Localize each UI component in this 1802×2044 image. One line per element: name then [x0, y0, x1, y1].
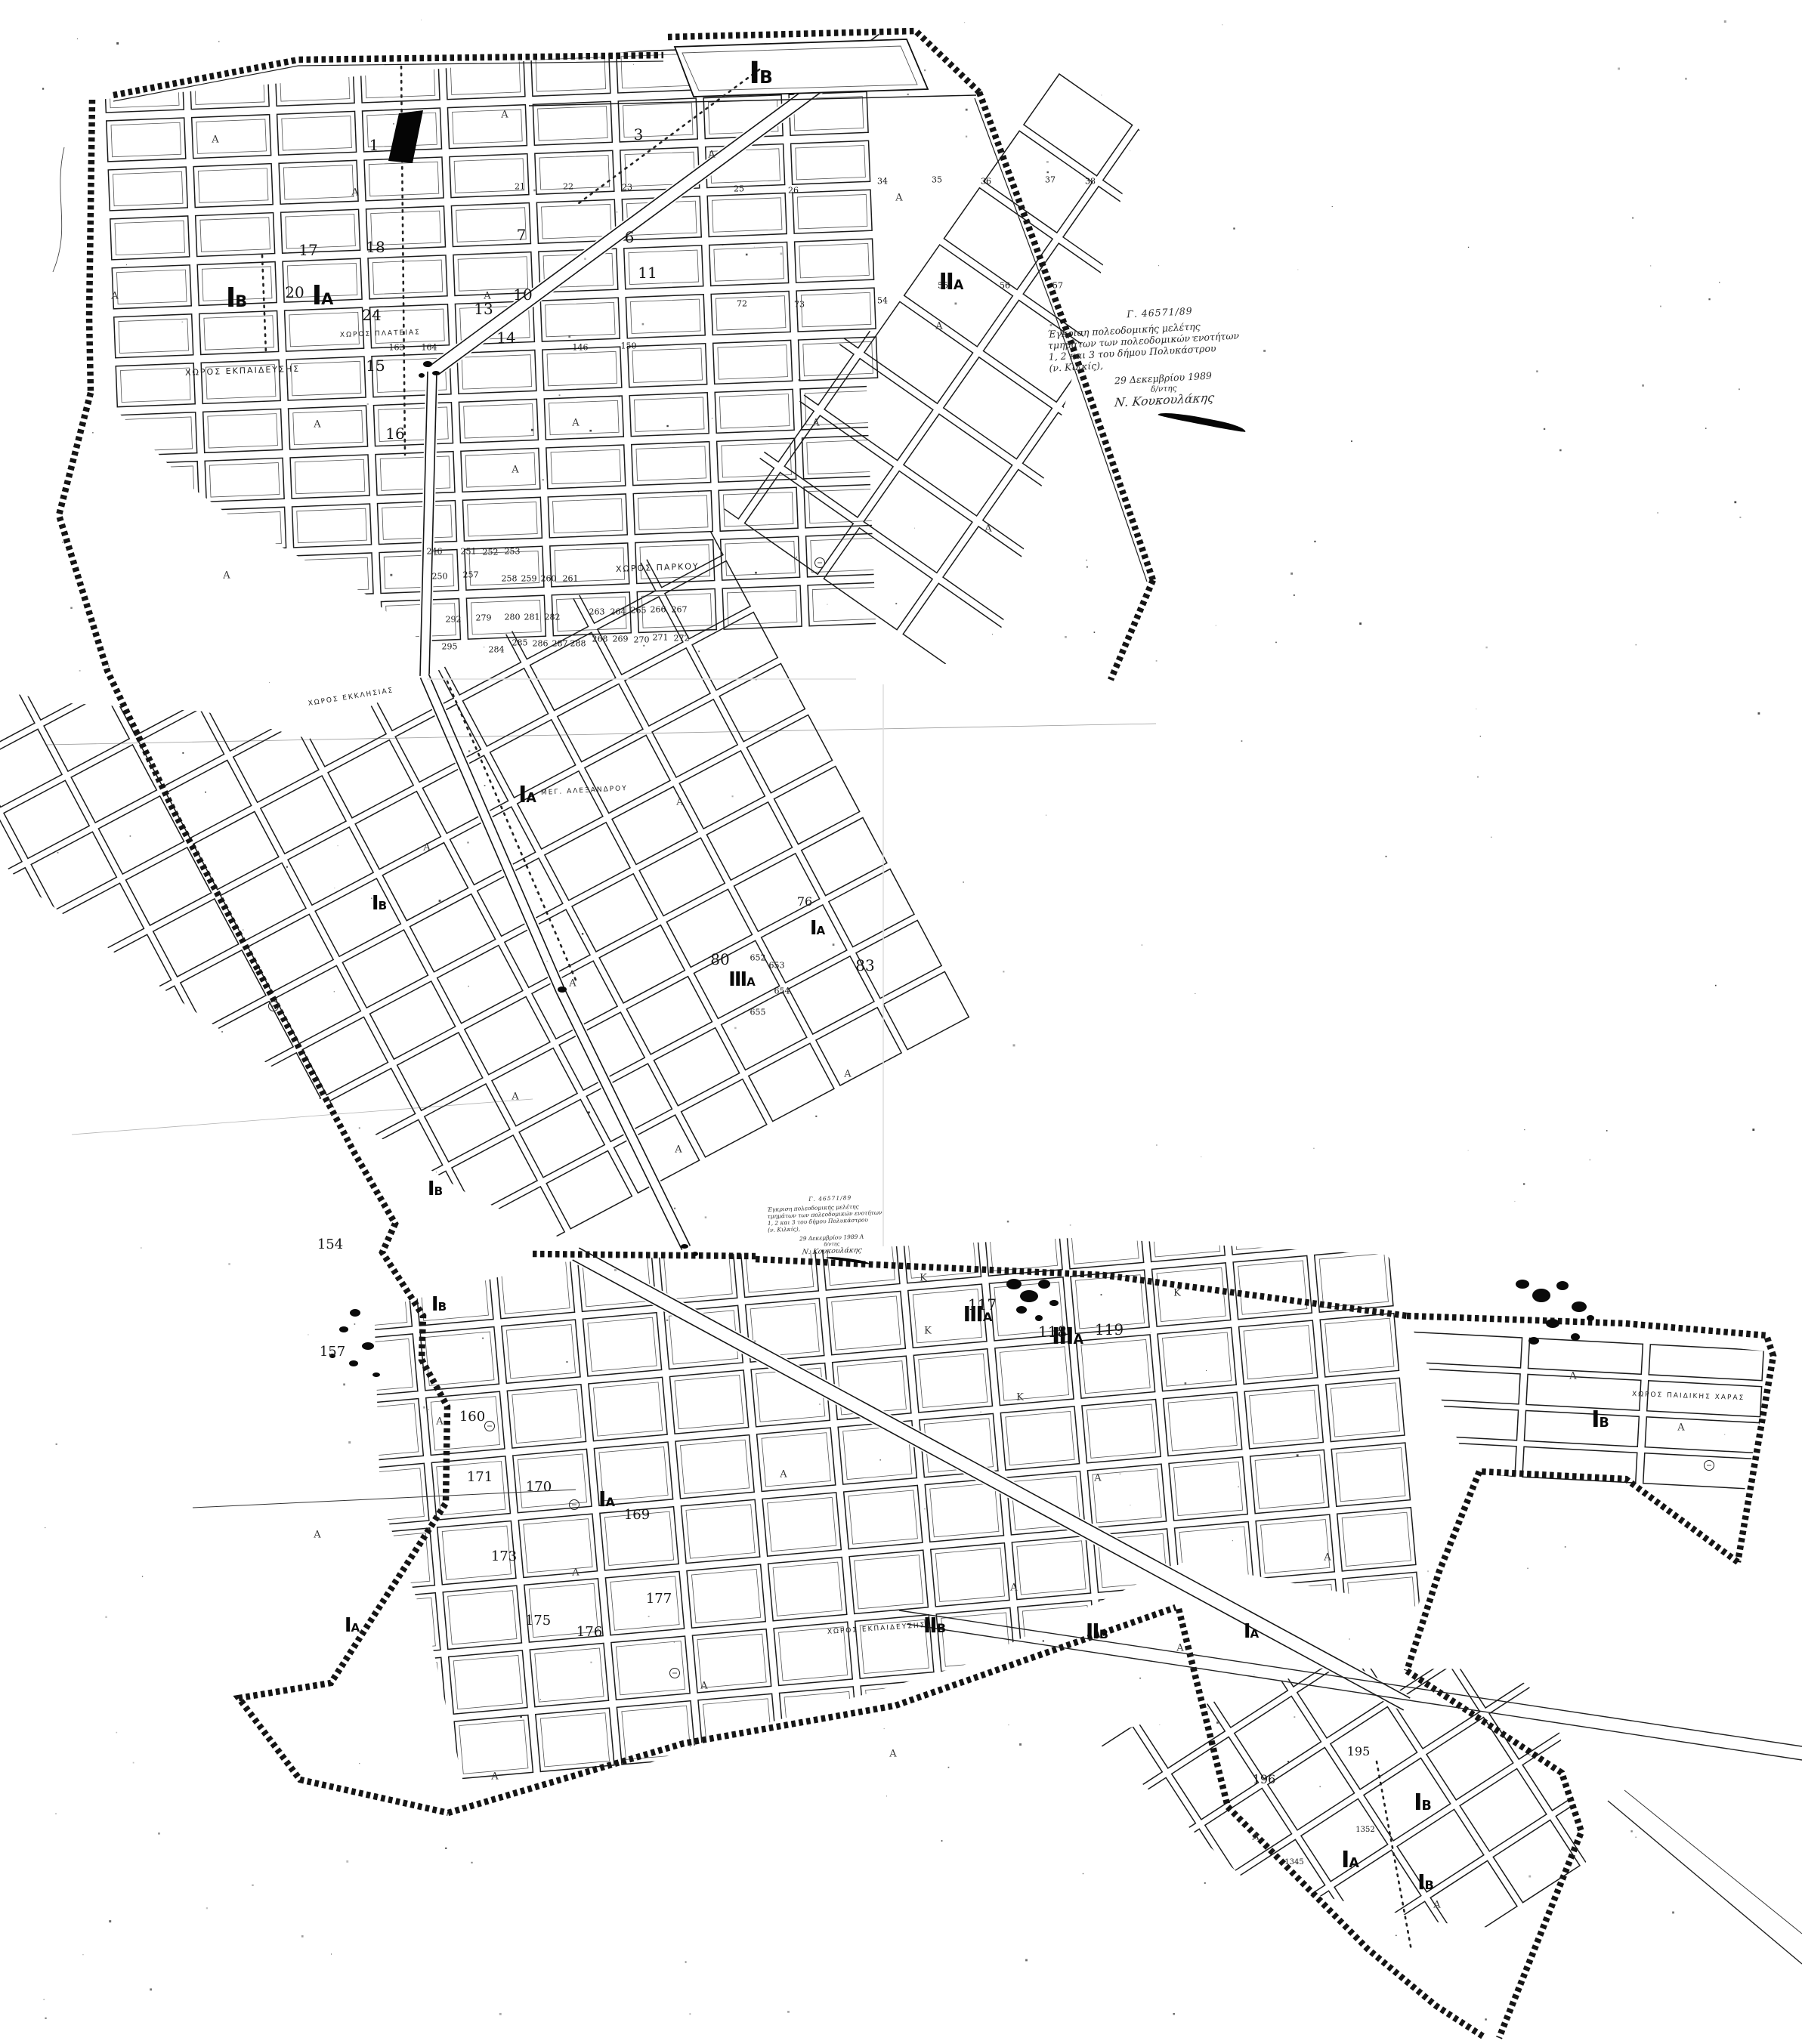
map-scan-page: IBIBIAIIAIAIBIAIIIAIBIBIIIAIIIAIAIAIAIIB… — [0, 0, 1802, 2044]
map-linework — [0, 0, 1802, 2044]
map-svg — [0, 0, 1802, 2044]
